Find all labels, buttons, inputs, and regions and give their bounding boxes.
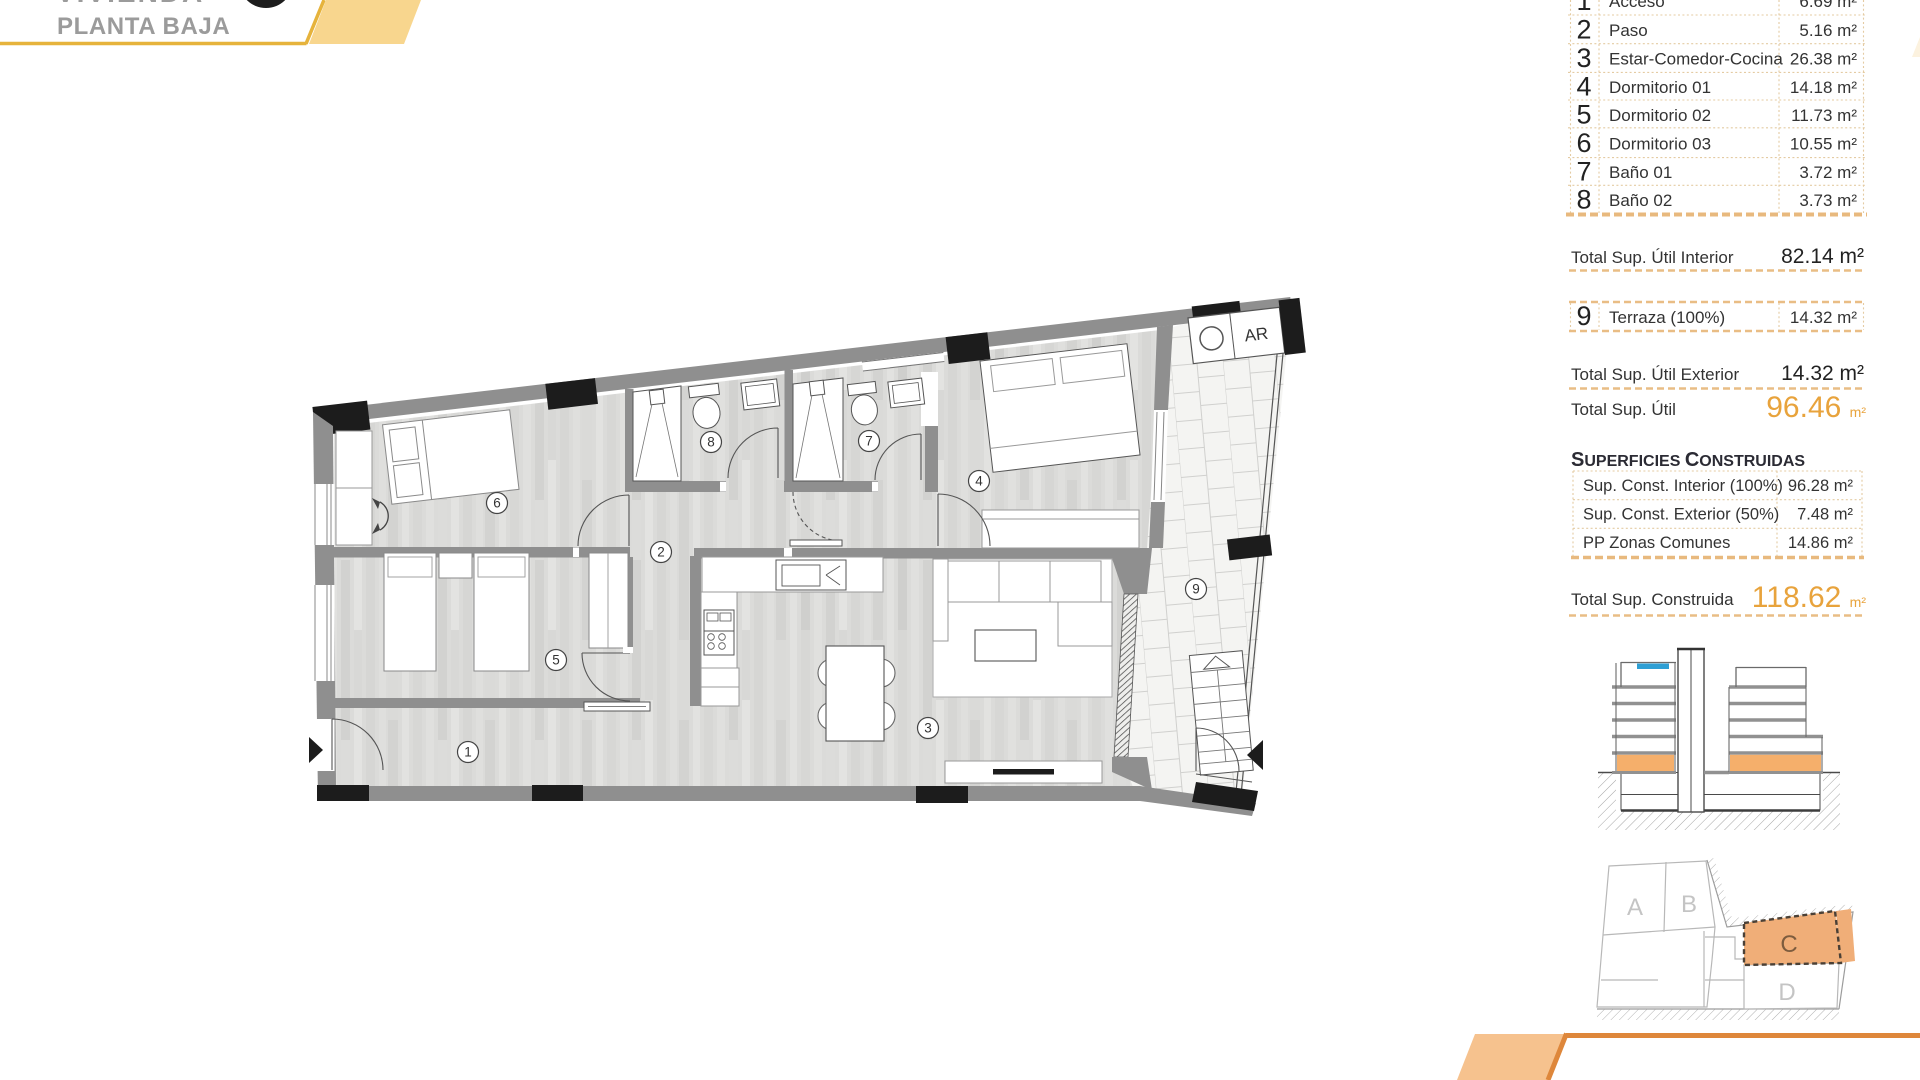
svg-text:5: 5: [1576, 100, 1591, 130]
svg-text:3: 3: [1576, 43, 1591, 73]
svg-text:7: 7: [865, 434, 873, 449]
svg-text:26.38 m²: 26.38 m²: [1790, 50, 1857, 69]
svg-text:Baño 01: Baño 01: [1609, 163, 1672, 182]
svg-text:3.72 m²: 3.72 m²: [1799, 163, 1857, 182]
svg-text:1: 1: [464, 745, 472, 760]
svg-text:Terraza (100%): Terraza (100%): [1609, 308, 1725, 327]
svg-text:3: 3: [924, 721, 932, 736]
svg-text:Estar-Comedor-Cocina: Estar-Comedor-Cocina: [1609, 50, 1783, 69]
svg-text:C: C: [1780, 931, 1797, 958]
svg-text:3.73 m²: 3.73 m²: [1799, 191, 1857, 210]
svg-text:9: 9: [1192, 582, 1200, 597]
svg-text:Total Sup. Útil Exterior: Total Sup. Útil Exterior: [1571, 365, 1740, 384]
svg-text:Acceso: Acceso: [1609, 0, 1665, 11]
svg-text:A: A: [1627, 894, 1643, 921]
svg-text:2: 2: [657, 545, 665, 560]
svg-text:96.28 m²: 96.28 m²: [1788, 477, 1854, 495]
svg-text:5.16 m²: 5.16 m²: [1799, 21, 1857, 40]
svg-text:PLANTA BAJA: PLANTA BAJA: [57, 13, 230, 40]
svg-text:Total Sup. Útil Interior: Total Sup. Útil Interior: [1571, 248, 1734, 267]
svg-text:SUPERFICIES CONSTRUIDAS: SUPERFICIES CONSTRUIDAS: [1571, 449, 1805, 471]
svg-text:6.69 m²: 6.69 m²: [1799, 0, 1857, 11]
svg-text:118.62 m²: 118.62 m²: [1752, 581, 1867, 614]
svg-text:8: 8: [1576, 185, 1591, 215]
svg-text:9: 9: [1576, 301, 1591, 331]
svg-text:5: 5: [552, 653, 560, 668]
svg-text:Total Sup. Útil: Total Sup. Útil: [1571, 400, 1676, 419]
svg-text:PP Zonas Comunes: PP Zonas Comunes: [1583, 534, 1730, 552]
svg-text:Dormitorio 02: Dormitorio 02: [1609, 106, 1711, 125]
svg-text:6: 6: [493, 496, 501, 511]
svg-text:14.32 m²: 14.32 m²: [1790, 308, 1857, 327]
svg-text:Dormitorio 03: Dormitorio 03: [1609, 135, 1711, 154]
svg-text:Sup. Const. Exterior (50%): Sup. Const. Exterior (50%): [1583, 506, 1779, 524]
svg-text:10.55 m²: 10.55 m²: [1790, 135, 1857, 154]
svg-text:82.14 m²: 82.14 m²: [1781, 245, 1864, 268]
svg-text:14.18 m²: 14.18 m²: [1790, 78, 1857, 97]
svg-text:11.73 m²: 11.73 m²: [1791, 106, 1857, 125]
svg-text:Paso: Paso: [1609, 21, 1648, 40]
svg-text:VIVIENDA: VIVIENDA: [56, 0, 204, 8]
svg-text:4: 4: [1576, 72, 1591, 102]
svg-text:8: 8: [707, 435, 715, 450]
svg-text:Sup. Const. Interior (100%): Sup. Const. Interior (100%): [1583, 477, 1783, 495]
svg-text:4: 4: [975, 474, 983, 489]
svg-text:Dormitorio 01: Dormitorio 01: [1609, 78, 1711, 97]
svg-text:6: 6: [1576, 128, 1591, 158]
svg-text:Baño 02: Baño 02: [1609, 191, 1672, 210]
svg-text:D: D: [1778, 979, 1795, 1006]
svg-text:7.48 m²: 7.48 m²: [1797, 506, 1853, 524]
svg-text:Total Sup. Construida: Total Sup. Construida: [1571, 590, 1734, 609]
svg-text:AR: AR: [1244, 324, 1270, 346]
svg-text:14.86 m²: 14.86 m²: [1788, 534, 1854, 552]
svg-text:14.32 m²: 14.32 m²: [1781, 362, 1864, 385]
svg-text:7: 7: [1576, 157, 1591, 187]
svg-text:B: B: [1681, 891, 1697, 918]
svg-text:2: 2: [1576, 15, 1591, 45]
